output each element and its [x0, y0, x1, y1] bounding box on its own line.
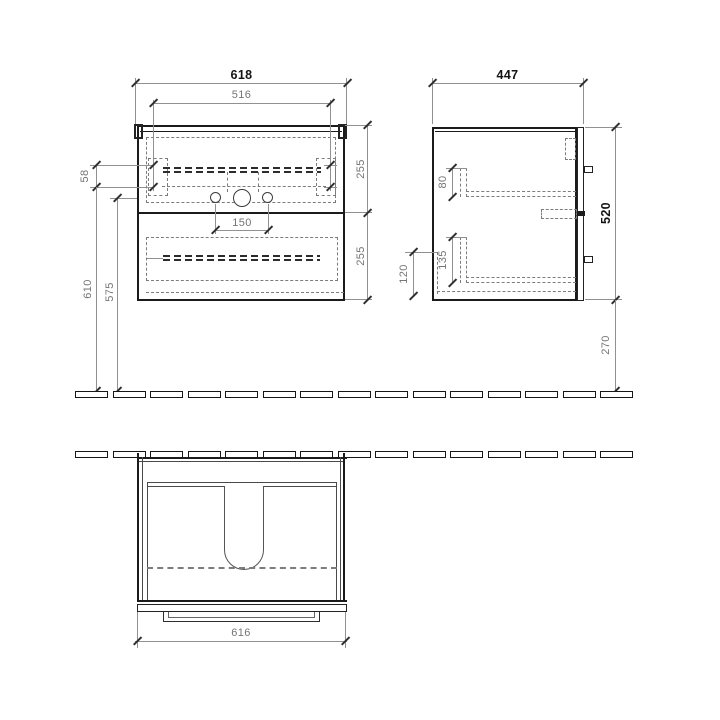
plan-front-edge [137, 600, 347, 602]
dim-58-label: 58 [78, 156, 92, 196]
floor-hatch-segment [488, 451, 521, 458]
front-upper-drawer-rail [163, 167, 321, 173]
plan-counter-side-left [147, 482, 148, 601]
front-fixing-hole-left [210, 192, 221, 203]
floor-hatch-segment [413, 391, 446, 398]
front-fixing-hole-right [262, 192, 273, 203]
fixing-leader-line [90, 165, 154, 166]
extension-line [345, 612, 346, 648]
technical-drawing-canvas: 618 516 58 610 575 150 255 255 [0, 0, 720, 720]
dim-610-line [96, 187, 97, 391]
extension-line [137, 612, 138, 648]
dim-516-label: 516 [215, 88, 268, 102]
extension-line [330, 100, 331, 191]
side-wall-hook-upper [584, 166, 593, 173]
floor-hatch-segment [525, 451, 558, 458]
side-rail-notch [576, 211, 585, 216]
dim-520-label: 520 [599, 193, 613, 233]
dimension-tick [343, 78, 352, 87]
dim-575-label: 575 [103, 272, 117, 312]
dim-80-line [452, 168, 453, 197]
dim-270-line [615, 300, 616, 391]
plan-wall-left-outer [137, 453, 139, 602]
floor-hatch-segment [113, 391, 146, 398]
floor-hatch-segment [413, 451, 446, 458]
front-side-cap-left [134, 124, 143, 139]
floor-hatch-segment [188, 391, 221, 398]
plan-counter-back-line [147, 482, 337, 483]
extension-line [583, 78, 584, 124]
dim-616-label: 616 [217, 626, 265, 640]
plan-wall-right-outer [343, 453, 345, 602]
plan-wall-right-inner [340, 457, 341, 602]
front-drain-hole-center [233, 189, 251, 207]
extension-line [432, 78, 433, 124]
plan-front-panel [137, 604, 347, 612]
floor-hatch-segment [300, 391, 333, 398]
side-rail-hidden-line [460, 237, 461, 283]
dim-255-lower-label: 255 [354, 236, 368, 276]
fixing-leader-line [90, 187, 154, 188]
dim-575-line [117, 198, 118, 391]
front-lower-rail-lead-line [147, 258, 163, 259]
dim-135-line [452, 237, 453, 283]
floor-hatch-segment [375, 451, 408, 458]
front-bottom-hidden-line [146, 292, 344, 293]
floor-hatch-segment [450, 391, 483, 398]
dim-618-line [135, 83, 347, 84]
dim-516-line [153, 103, 330, 104]
floor-hatch-segment [525, 391, 558, 398]
plan-counter-side-right [336, 482, 337, 601]
dim-270-label: 270 [599, 325, 613, 365]
side-rail-hidden-line [466, 191, 576, 192]
floor-hatch-segment [75, 391, 108, 398]
dim-618-label: 618 [215, 68, 268, 82]
side-hidden-bracket-upper [565, 138, 576, 160]
side-rail-hidden-line [466, 196, 576, 197]
dim-520-line [615, 127, 616, 300]
side-rail-hidden-line [466, 277, 576, 278]
floor-hatch-line-upper [75, 391, 635, 398]
side-wall-hook-lower [584, 256, 593, 263]
floor-hatch-segment [600, 391, 633, 398]
dim-80-label: 80 [436, 162, 450, 202]
dim-120-label: 120 [397, 254, 411, 294]
side-rail-hidden-line [466, 168, 467, 197]
floor-hatch-segment [263, 391, 296, 398]
dim-610-label: 610 [81, 269, 95, 309]
extension-line [585, 127, 622, 128]
dim-447-label: 447 [481, 68, 534, 82]
dim-616-line [135, 641, 347, 642]
front-side-cap-right [338, 124, 347, 139]
side-top-panel-line [435, 131, 575, 132]
floor-hatch-segment [338, 391, 371, 398]
plan-wall-left-inner [142, 457, 143, 602]
floor-hatch-segment [150, 391, 183, 398]
front-drawer-divider [137, 212, 345, 214]
plan-back-edge [137, 457, 347, 459]
side-hidden-bracket-mid [541, 209, 577, 219]
floor-hatch-segment [375, 391, 408, 398]
side-hidden-line [437, 252, 438, 294]
dim-135-label: 135 [436, 240, 450, 280]
dim-120-line [413, 252, 414, 296]
floor-hatch-segment [488, 391, 521, 398]
floor-hatch-segment [75, 451, 108, 458]
plan-siphon-cutout [224, 486, 264, 570]
floor-hatch-segment [225, 391, 258, 398]
plan-handle-inner [168, 612, 315, 618]
floor-hatch-segment [450, 451, 483, 458]
side-rail-hidden-line [466, 282, 576, 283]
floor-hatch-segment [600, 451, 633, 458]
plan-hidden-centerline [147, 567, 337, 569]
extension-line [135, 78, 136, 124]
front-top-panel-line [140, 131, 342, 132]
plan-back-inner-line [139, 461, 345, 462]
dim-447-line [432, 83, 583, 84]
front-upper-hidden-line [162, 186, 326, 187]
floor-hatch-segment [563, 451, 596, 458]
floor-hatch-segment [563, 391, 596, 398]
side-rail-hidden-line [460, 168, 461, 197]
extension-line [153, 100, 154, 191]
front-hole-centerline-left [227, 172, 228, 192]
dim-150-line [215, 230, 268, 231]
dim-150-label: 150 [218, 216, 266, 230]
front-hole-centerline-right [258, 172, 259, 192]
dim-255-upper-label: 255 [354, 149, 368, 189]
side-hidden-bottom-line [437, 291, 576, 292]
front-lower-drawer-rail [163, 255, 320, 261]
